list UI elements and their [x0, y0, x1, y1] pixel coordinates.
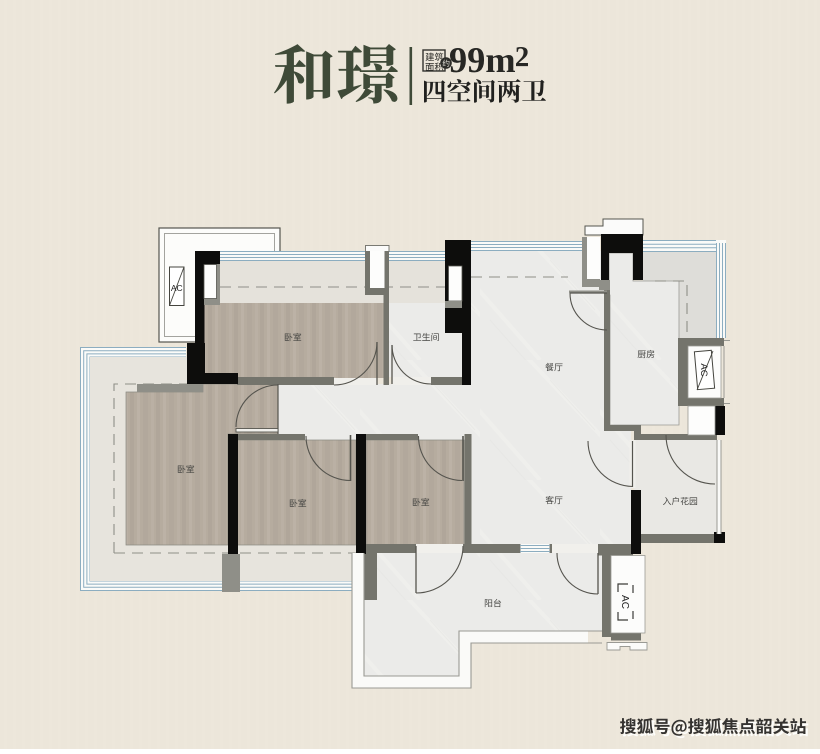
svg-text:AC: AC: [171, 283, 183, 293]
svg-text:AC: AC: [619, 595, 630, 609]
svg-text:AC: AC: [698, 363, 709, 376]
